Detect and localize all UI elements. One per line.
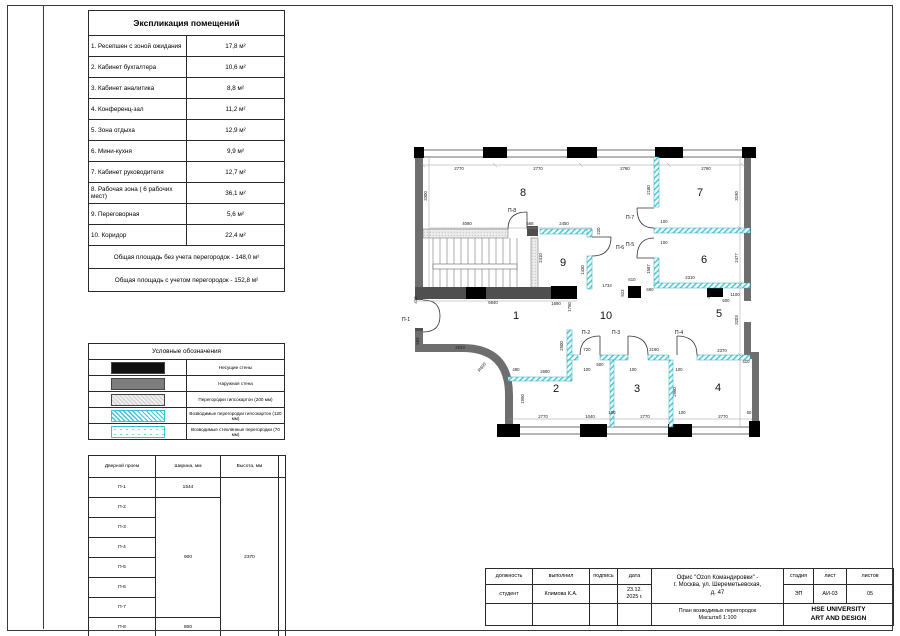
explication-total-row: Общая площадь без учета перегородок - 14… — [89, 246, 285, 269]
legend-swatch-gray-hatch — [111, 394, 165, 406]
room-name: 5. Зона отдыха — [89, 120, 187, 141]
tb-header-date: дата — [618, 569, 652, 585]
room-area: 22,4 м² — [187, 225, 285, 246]
explication-row: 8. Рабочая зона ( 6 рабочих мест)36,1 м² — [89, 183, 285, 204]
total-area: Общая площадь без учета перегородок - 14… — [89, 246, 285, 269]
tb-value-performed: Климова К.А. — [533, 585, 590, 604]
legend-title: Условные обозначения — [89, 344, 285, 360]
door-name: П-3 — [89, 518, 156, 538]
door-col-header: Дверной проем — [89, 456, 156, 478]
door-schedule-table: Дверной проем Ширина, мм Высота, мм П-11… — [88, 455, 286, 636]
tb-organization: HSE UNIVERSITY ART AND DESIGN — [784, 604, 894, 626]
explication-title: Экспликация помещений — [89, 11, 285, 36]
explication-row: 7. Кабинет руководителя12,7 м² — [89, 162, 285, 183]
door-width: 1544 — [156, 478, 221, 498]
legend-row: Несущие стены — [89, 360, 285, 376]
tb-value-stage: ЭП — [784, 585, 814, 604]
legend-swatch-cell — [89, 424, 187, 440]
door-height: 2370 — [221, 478, 279, 636]
explication-row: 3. Кабинет аналитика8,8 м² — [89, 78, 285, 99]
legend-body: Несущие стеныНаружная стенаПерегородки г… — [89, 360, 285, 440]
door-name: П-2 — [89, 498, 156, 518]
legend-swatch-black-fill — [111, 362, 165, 374]
room-area: 11,2 м² — [187, 99, 285, 120]
tb-empty-cell — [618, 604, 652, 626]
room-name: 6. Мини-кухня — [89, 141, 187, 162]
legend-swatch-cell — [89, 408, 187, 424]
door-name: П-4 — [89, 538, 156, 558]
door-col-header: Ширина, мм — [156, 456, 221, 478]
door-col-spacer — [279, 456, 286, 478]
legend-swatch-cyan-dots — [111, 426, 165, 438]
tb-header-performed: выполнил — [533, 569, 590, 585]
drawing-sheet: Экспликация помещений 1. Ресепшен с зоно… — [0, 0, 900, 636]
tb-empty-cell — [590, 604, 618, 626]
legend-label: Несущие стены — [187, 360, 285, 376]
room-name: 2. Кабинет бухгалтера — [89, 57, 187, 78]
door-name: П-5 — [89, 558, 156, 578]
door-name: П-1 — [89, 478, 156, 498]
room-area: 5,6 м² — [187, 204, 285, 225]
door-schedule-body: П-115442370П-2900П-3П-4П-5П-6П-7П-8800 — [89, 478, 286, 636]
tb-empty-cell — [486, 604, 533, 626]
room-name: 10. Коридор — [89, 225, 187, 246]
legend-swatch-cell — [89, 392, 187, 408]
tb-header-sheets: листов — [847, 569, 894, 585]
legend-row: Возводимые перегородки гипсокартон (120 … — [89, 408, 285, 424]
title-block: должность выполнил подпись дата Офис "Oz… — [485, 568, 894, 626]
room-area: 36,1 м² — [187, 183, 285, 204]
tb-project-address: Офис "Ozon Командировки" - г. Москва, ул… — [652, 569, 784, 604]
tb-drawing-title: План возводимых перегородок Масштаб 1:10… — [652, 604, 784, 626]
door-width: 900 — [156, 498, 221, 618]
legend-swatch-gray-fill — [111, 378, 165, 390]
tb-header-sheet: лист — [814, 569, 847, 585]
legend-table: Условные обозначения Несущие стеныНаружн… — [88, 343, 285, 440]
tb-value-date: 23.12. 2025 г. — [618, 585, 652, 604]
tb-empty-cell — [533, 604, 590, 626]
door-name: П-8 — [89, 618, 156, 636]
legend-row: Перегородки гипсокартон (200 мм) — [89, 392, 285, 408]
tb-value-sheet: АИ-03 — [814, 585, 847, 604]
door-row: П-115442370 — [89, 478, 286, 498]
total-area: Общая площадь с учетом перегородок - 152… — [89, 269, 285, 292]
door-col-header: Высота, мм — [221, 456, 279, 478]
room-area: 17,8 м² — [187, 36, 285, 57]
explication-row: 10. Коридор22,4 м² — [89, 225, 285, 246]
tb-value-signature — [590, 585, 618, 604]
explication-total-row: Общая площадь с учетом перегородок - 152… — [89, 269, 285, 292]
legend-swatch-cyan-hatch — [111, 410, 165, 422]
explication-row: 6. Мини-кухня9,9 м² — [89, 141, 285, 162]
legend-label: Наружная стена — [187, 376, 285, 392]
room-area: 8,8 м² — [187, 78, 285, 99]
room-area: 12,9 м² — [187, 120, 285, 141]
explication-body: 1. Ресепшен с зоной ожидания17,8 м²2. Ка… — [89, 36, 285, 292]
legend-label: Возводимые стеклянные перегородки (70 мм… — [187, 424, 285, 440]
tb-value-sheets: 05 — [847, 585, 894, 604]
room-name: 8. Рабочая зона ( 6 рабочих мест) — [89, 183, 187, 204]
room-area: 10,6 м² — [187, 57, 285, 78]
legend-swatch-cell — [89, 376, 187, 392]
door-name: П-7 — [89, 598, 156, 618]
sheet-margin-line — [43, 5, 44, 629]
room-name: 4. Конференц-зал — [89, 99, 187, 120]
door-spacer — [279, 478, 286, 636]
room-area: 9,9 м² — [187, 141, 285, 162]
explication-row: 1. Ресепшен с зоной ожидания17,8 м² — [89, 36, 285, 57]
explication-row: 2. Кабинет бухгалтера10,6 м² — [89, 57, 285, 78]
room-name: 3. Кабинет аналитика — [89, 78, 187, 99]
door-width: 800 — [156, 618, 221, 636]
explication-table: Экспликация помещений 1. Ресепшен с зоно… — [88, 10, 285, 292]
tb-header-signature: подпись — [590, 569, 618, 585]
legend-label: Перегородки гипсокартон (200 мм) — [187, 392, 285, 408]
explication-row: 5. Зона отдыха12,9 м² — [89, 120, 285, 141]
legend-row: Наружная стена — [89, 376, 285, 392]
explication-row: 4. Конференц-зал11,2 м² — [89, 99, 285, 120]
door-name: П-6 — [89, 578, 156, 598]
room-name: 7. Кабинет руководителя — [89, 162, 187, 183]
tb-header-stage: стадия — [784, 569, 814, 585]
legend-row: Возводимые стеклянные перегородки (70 мм… — [89, 424, 285, 440]
legend-label: Возводимые перегородки гипсокартон (120 … — [187, 408, 285, 424]
tb-value-position: студент — [486, 585, 533, 604]
room-name: 9. Переговорная — [89, 204, 187, 225]
explication-row: 9. Переговорная5,6 м² — [89, 204, 285, 225]
legend-swatch-cell — [89, 360, 187, 376]
room-name: 1. Ресепшен с зоной ожидания — [89, 36, 187, 57]
room-area: 12,7 м² — [187, 162, 285, 183]
tb-header-position: должность — [486, 569, 533, 585]
